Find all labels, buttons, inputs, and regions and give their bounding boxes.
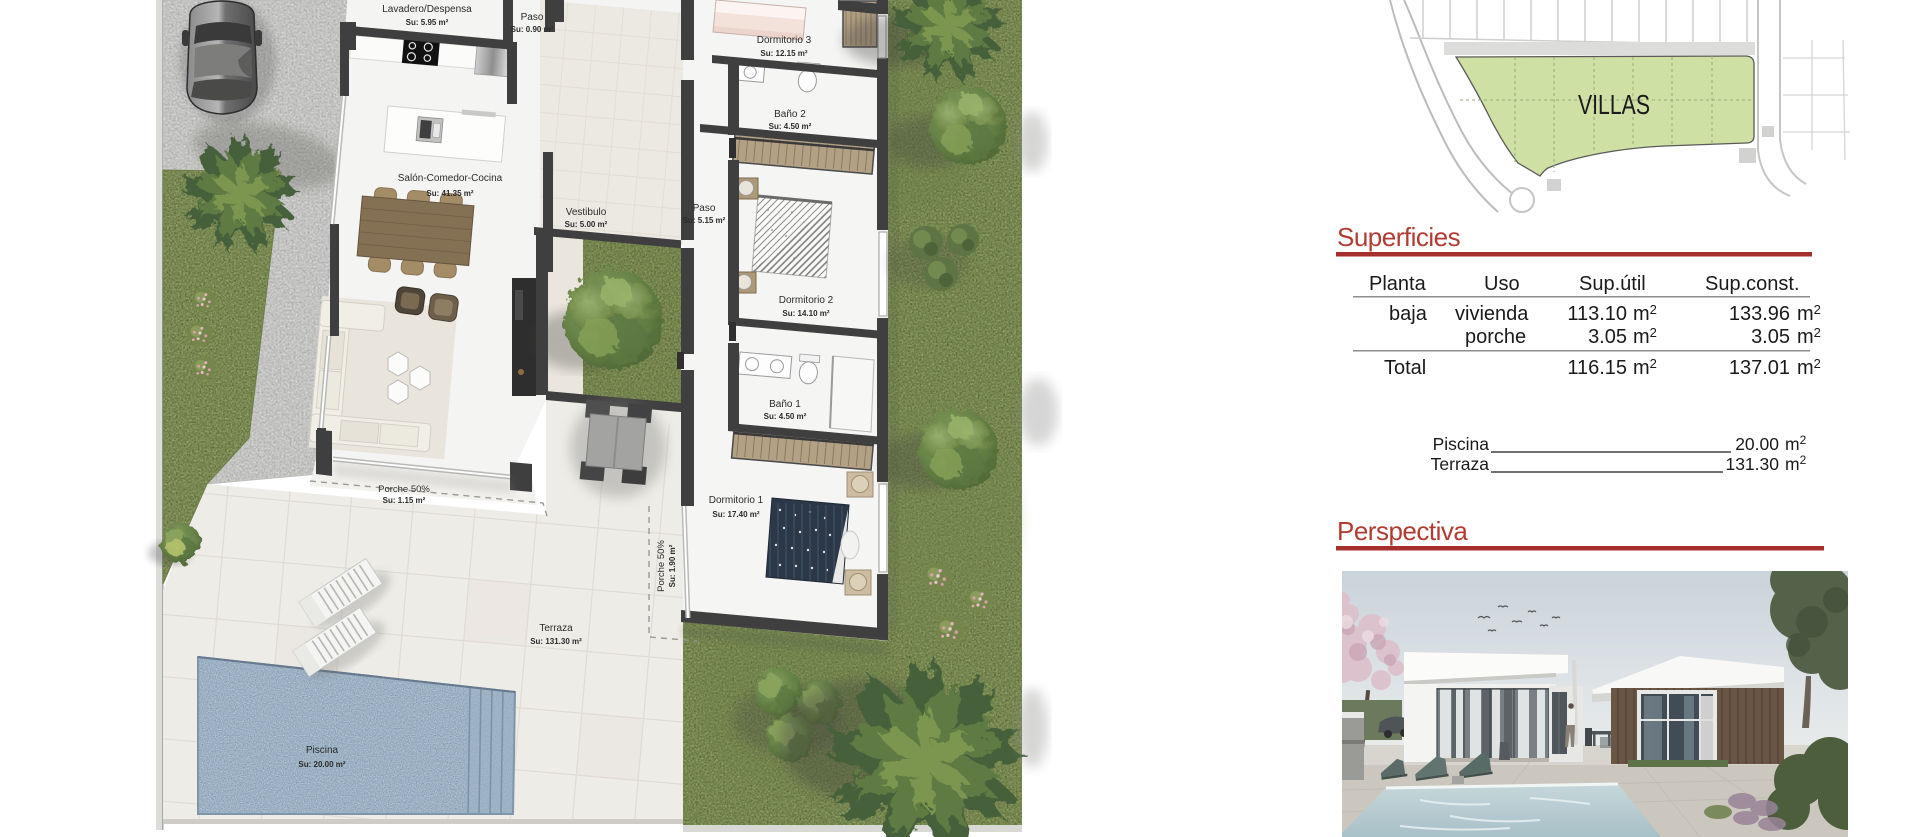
svg-text:Perspectiva: Perspectiva: [1337, 516, 1468, 546]
svg-text:Total: Total: [1384, 357, 1426, 379]
svg-text:131.30: 131.30: [1725, 454, 1779, 474]
svg-text:133.96: 133.96: [1729, 303, 1790, 325]
svg-text:113.10: 113.10: [1567, 303, 1627, 325]
svg-text:Dormitorio 2: Dormitorio 2: [779, 295, 834, 306]
svg-text:Sup.const.: Sup.const.: [1705, 273, 1800, 295]
svg-text:VILLAS: VILLAS: [1578, 89, 1650, 120]
svg-text:Paso: Paso: [521, 12, 544, 23]
svg-text:Su: 131.30 m²: Su: 131.30 m²: [530, 637, 582, 646]
svg-text:Superficies: Superficies: [1337, 222, 1461, 252]
svg-text:Su: 1.15 m²: Su: 1.15 m²: [383, 496, 426, 505]
svg-text:Su: 41.35 m²: Su: 41.35 m²: [426, 189, 473, 198]
svg-text:Piscina: Piscina: [1433, 434, 1490, 454]
svg-text:vivienda: vivienda: [1455, 303, 1529, 325]
svg-text:Terraza: Terraza: [539, 623, 573, 634]
svg-text:Baño 2: Baño 2: [774, 109, 806, 120]
svg-text:Salón-Comedor-Cocina: Salón-Comedor-Cocina: [398, 173, 503, 184]
svg-text:3.05: 3.05: [1751, 326, 1790, 348]
svg-text:Su: 5.95 m²: Su: 5.95 m²: [406, 18, 449, 27]
svg-text:Baño 1: Baño 1: [769, 399, 801, 410]
svg-text:Su: 0.90 m²: Su: 0.90 m²: [511, 25, 554, 34]
svg-text:137.01: 137.01: [1729, 357, 1790, 379]
svg-text:Su: 4.50 m²: Su: 4.50 m²: [769, 122, 812, 131]
svg-text:Su: 14.10 m²: Su: 14.10 m²: [782, 309, 829, 318]
svg-text:20.00: 20.00: [1735, 434, 1779, 454]
svg-text:Su: 1.90 m²: Su: 1.90 m²: [668, 544, 677, 587]
svg-text:Porche 50%: Porche 50%: [378, 484, 430, 495]
svg-text:Lavadero/Despensa: Lavadero/Despensa: [382, 4, 472, 15]
svg-text:Terraza: Terraza: [1431, 454, 1490, 474]
svg-text:Su: 20.00 m²: Su: 20.00 m²: [298, 760, 345, 769]
svg-text:Vestibulo: Vestibulo: [566, 207, 607, 218]
svg-text:116.15: 116.15: [1567, 357, 1627, 379]
svg-text:Dormitorio 1: Dormitorio 1: [709, 495, 764, 506]
svg-text:Su: 4.50 m²: Su: 4.50 m²: [764, 412, 807, 421]
svg-text:Sup.útil: Sup.útil: [1579, 273, 1646, 295]
svg-text:porche: porche: [1465, 326, 1526, 348]
svg-text:Dormitorio 3: Dormitorio 3: [757, 35, 812, 46]
svg-text:Piscina: Piscina: [306, 745, 339, 756]
svg-text:Su: 5.15 m²: Su: 5.15 m²: [683, 216, 726, 225]
svg-text:baja: baja: [1389, 303, 1428, 325]
svg-text:Porche 50%: Porche 50%: [656, 540, 667, 592]
svg-text:3.05: 3.05: [1588, 326, 1627, 348]
svg-text:Planta: Planta: [1369, 273, 1427, 295]
svg-text:Paso: Paso: [693, 203, 716, 214]
svg-text:Su: 17.40 m²: Su: 17.40 m²: [712, 510, 759, 519]
svg-text:Su: 12.15 m²: Su: 12.15 m²: [760, 49, 807, 58]
svg-text:Su: 5.00 m²: Su: 5.00 m²: [565, 220, 608, 229]
svg-text:Uso: Uso: [1484, 273, 1520, 295]
